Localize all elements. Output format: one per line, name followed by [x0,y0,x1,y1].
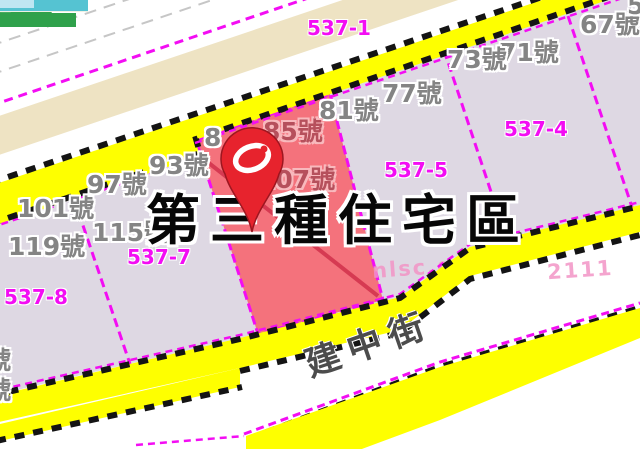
location-pin-icon[interactable] [217,120,287,235]
map-viewport[interactable]: nlsc.gov 2111 67號71號73號77號81號85號93號97號10… [0,0,640,449]
basemap-logo-bar2 [0,0,34,8]
zoning-label: 第三種住宅區 [146,176,530,255]
watermark-text: 2111 [546,256,614,285]
